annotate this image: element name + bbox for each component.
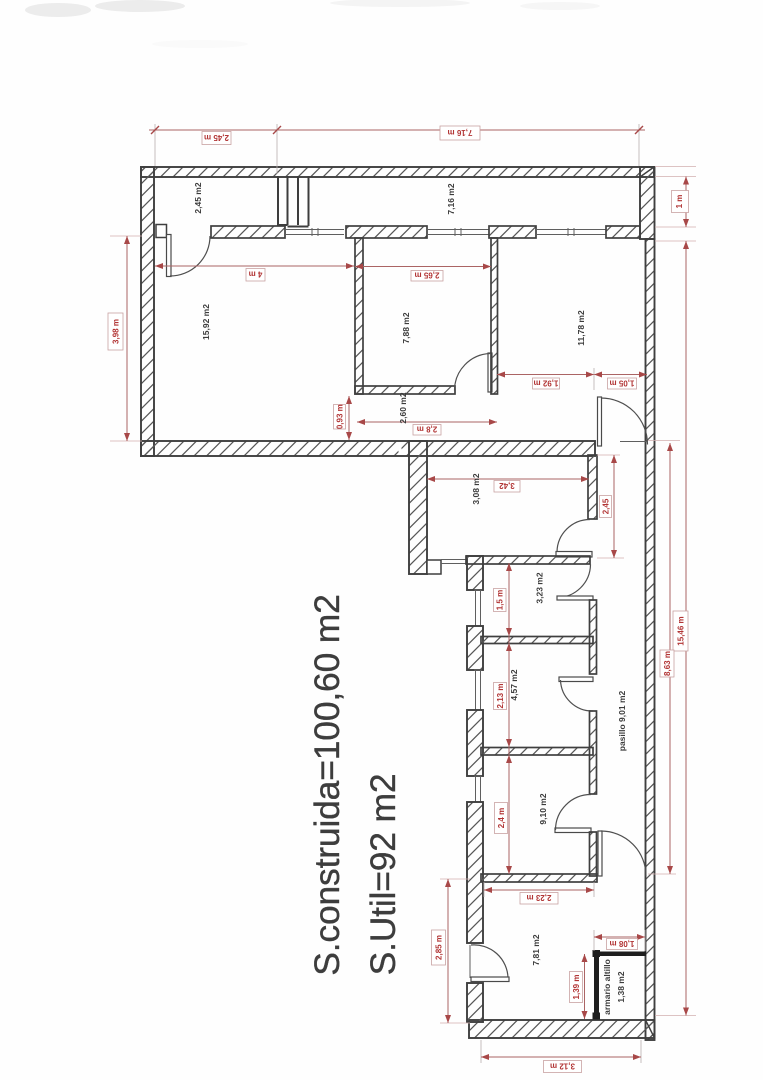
svg-text:7,81 m2: 7,81 m2 [531,934,541,965]
svg-text:7,88 m2: 7,88 m2 [401,312,411,343]
svg-text:3,23 m2: 3,23 m2 [535,572,545,603]
svg-text:2,45 m: 2,45 m [204,133,229,142]
svg-text:1,39 m: 1,39 m [572,975,581,1000]
svg-text:9,10 m2: 9,10 m2 [538,793,548,824]
svg-text:1,5 m: 1,5 m [496,590,505,610]
svg-text:2,23 m: 2,23 m [527,893,552,902]
svg-text:1,92 m: 1,92 m [534,379,559,388]
svg-text:pasillo 9,01 m2: pasillo 9,01 m2 [617,690,627,751]
svg-text:2,45 m2: 2,45 m2 [193,182,203,213]
svg-text:15,46 m: 15,46 m [677,616,686,645]
svg-text:2,8 m: 2,8 m [417,425,437,434]
svg-text:2,13 m: 2,13 m [496,684,505,709]
svg-text:S.construida=100,60 m2: S.construida=100,60 m2 [307,594,347,975]
svg-text:1,05 m: 1,05 m [610,379,635,388]
svg-text:1,08 m: 1,08 m [610,939,635,948]
svg-text:4 m: 4 m [249,270,263,279]
svg-text:3,42: 3,42 [499,481,515,490]
svg-text:1,38 m2: 1,38 m2 [616,971,626,1002]
svg-text:11,78 m2: 11,78 m2 [576,310,586,346]
svg-text:2,60 m2: 2,60 m2 [398,392,408,423]
svg-text:0,93 m: 0,93 m [336,404,345,429]
svg-text:armario altillo: armario altillo [602,959,612,1015]
svg-text:8,63 m: 8,63 m [663,651,672,676]
svg-text:3,08 m2: 3,08 m2 [471,473,481,504]
svg-text:2,4 m: 2,4 m [497,808,506,828]
svg-text:2,65 m: 2,65 m [415,271,440,280]
svg-text:S.Util=92 m2: S.Util=92 m2 [363,774,403,976]
svg-text:4,57 m2: 4,57 m2 [509,669,519,700]
svg-text:7,16 m: 7,16 m [448,128,473,137]
svg-text:1 m: 1 m [675,195,684,209]
svg-text:2,85 m: 2,85 m [435,935,444,960]
svg-text:3,12 m: 3,12 m [550,1062,575,1071]
svg-text:15,92 m2: 15,92 m2 [201,304,211,340]
svg-text:2,45: 2,45 [602,498,611,514]
svg-text:7,16 m2: 7,16 m2 [446,183,456,214]
svg-text:3,98 m: 3,98 m [112,319,121,344]
